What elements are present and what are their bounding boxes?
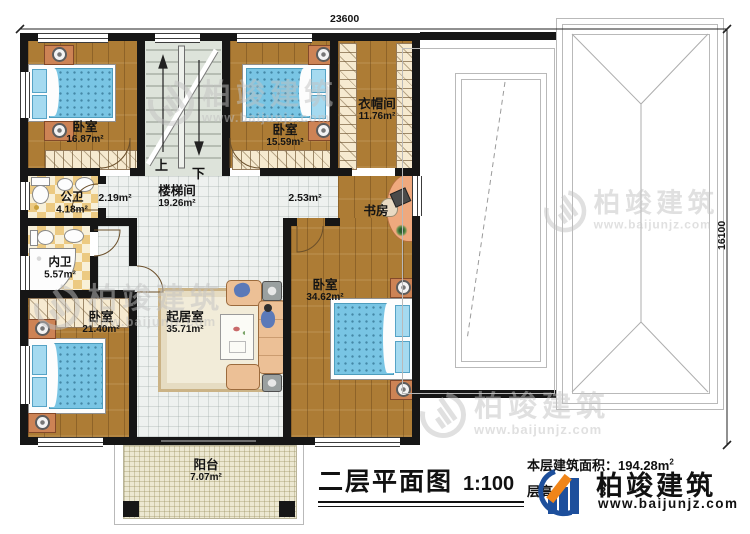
- brand-url: www.baijunjz.com: [598, 496, 739, 511]
- room-label-stairwell: 楼梯间19.26m²: [158, 184, 196, 210]
- floor-plan-canvas: 卧室16.87m² 卧室15.59m² 衣帽间11.76m² 楼梯间19.26m…: [0, 0, 750, 534]
- room-label-study: 书房: [363, 204, 388, 218]
- room-label-bedroom2: 卧室15.59m²: [266, 123, 303, 149]
- skylight-slope-dashed: [467, 82, 505, 340]
- hip-roof-lines: [572, 34, 708, 392]
- room-label-balcony: 阳台7.07m²: [190, 458, 222, 484]
- title-underline: [318, 501, 524, 507]
- stair-down-label: 下: [192, 163, 205, 182]
- door-arcs: [72, 138, 323, 292]
- room-label-living: 起居室35.71m²: [166, 310, 204, 336]
- room-label-bedroom4: 卧室34.62m²: [306, 278, 343, 304]
- brand-logo-icon: [538, 466, 594, 522]
- room-label-public-bath: 公卫4.18m²: [56, 192, 88, 217]
- stair-up-label: 上: [155, 155, 168, 174]
- plan-linework: [0, 0, 750, 534]
- dimension-top: 23600: [330, 13, 359, 25]
- room-label-bedroom3: 卧室21.40m²: [82, 310, 119, 336]
- room-label-hall-left: 2.19m²: [98, 192, 131, 204]
- room-label-hall-right: 2.53m²: [288, 192, 321, 204]
- room-label-bedroom1: 卧室16.87m²: [66, 120, 103, 146]
- title-scale: 1:100: [463, 473, 514, 495]
- room-label-cloakroom: 衣帽间11.76m²: [358, 97, 396, 123]
- title-text: 二层平面图: [318, 468, 453, 496]
- dimension-lines: [16, 25, 731, 449]
- drawing-title: 二层平面图1:100: [318, 462, 524, 507]
- room-label-private-bath: 内卫5.57m²: [44, 257, 76, 282]
- dimension-right: 16100: [716, 221, 728, 250]
